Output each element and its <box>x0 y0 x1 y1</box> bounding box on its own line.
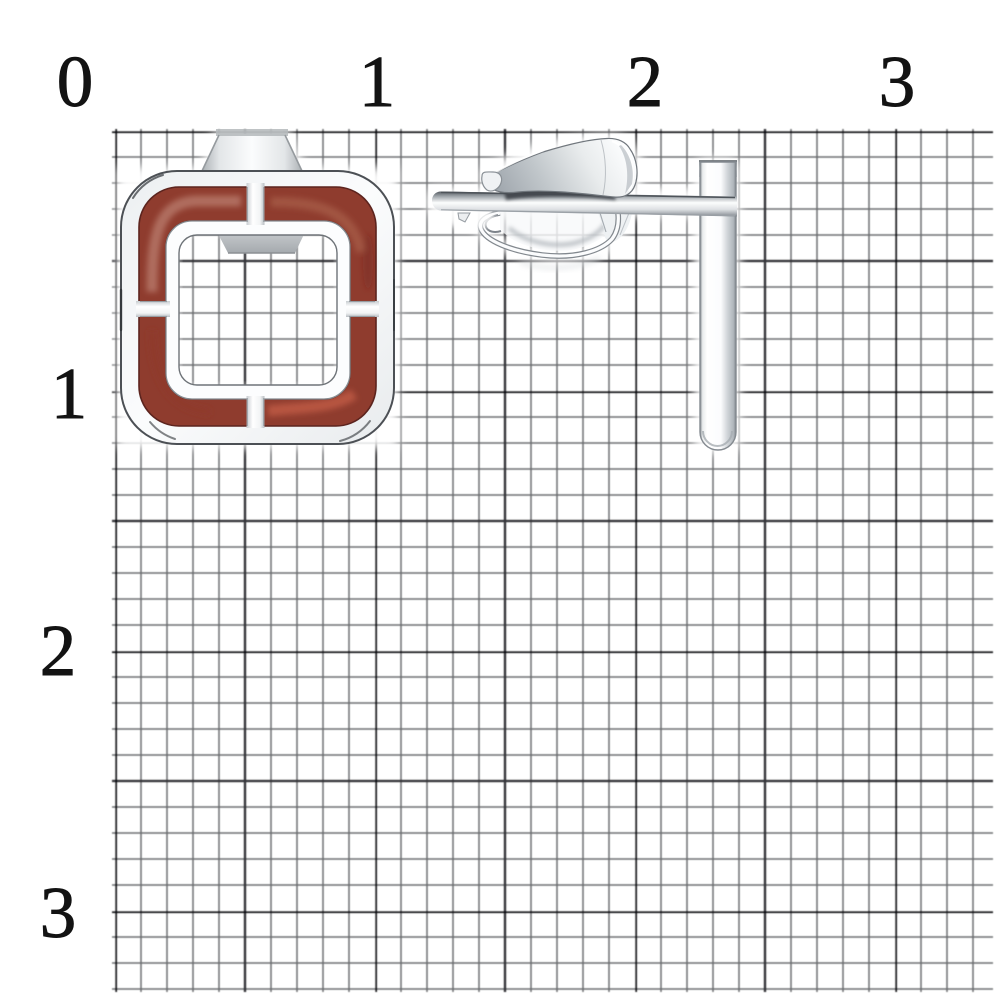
svg-text:2: 2 <box>627 41 664 122</box>
svg-text:1: 1 <box>359 41 396 122</box>
svg-text:1: 1 <box>51 353 88 434</box>
svg-text:2: 2 <box>40 610 77 691</box>
svg-text:3: 3 <box>879 41 916 122</box>
svg-text:3: 3 <box>40 872 77 953</box>
svg-text:0: 0 <box>57 41 94 122</box>
